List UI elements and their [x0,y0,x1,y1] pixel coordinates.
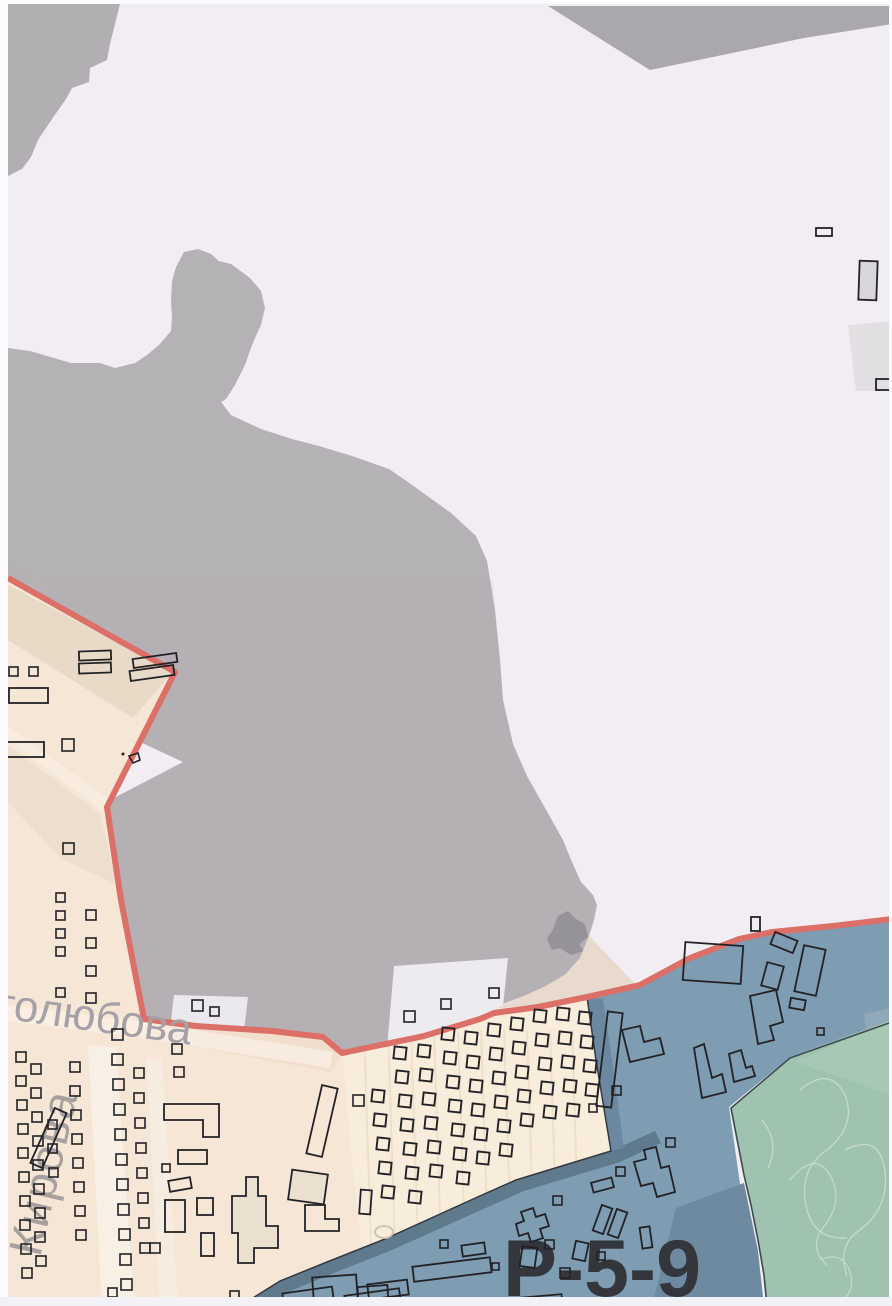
svg-text:Р-5-9: Р-5-9 [503,1224,701,1306]
